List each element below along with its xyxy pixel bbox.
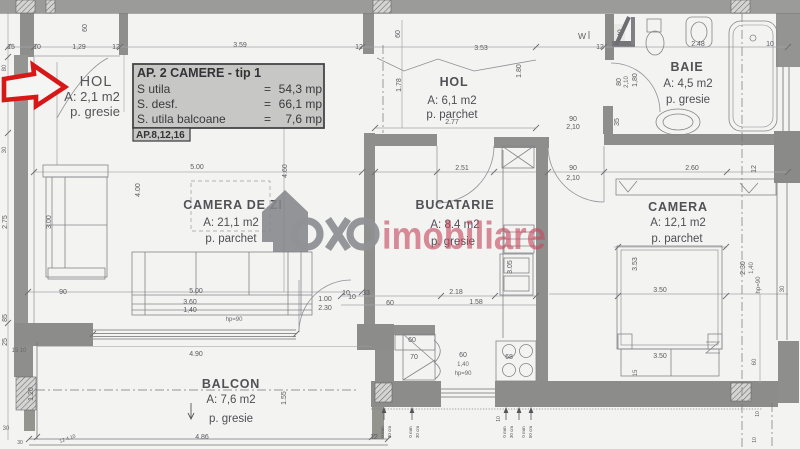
svg-text:3.00: 3.00 (46, 215, 53, 229)
svg-text:W: W (578, 31, 586, 41)
svg-text:2.30: 2.30 (318, 305, 332, 312)
svg-text:S. utila balcoane: S. utila balcoane (137, 112, 226, 126)
svg-text:0 mm: 0 mm (380, 426, 385, 438)
svg-text:HOL: HOL (440, 75, 469, 89)
svg-text:BUCATARIE: BUCATARIE (416, 198, 495, 212)
svg-text:10: 10 (20, 348, 27, 354)
svg-text:A: 2,1 m2: A: 2,1 m2 (64, 89, 120, 104)
svg-text:A: 6,1 m2: A: 6,1 m2 (427, 95, 476, 107)
svg-text:BAIE: BAIE (670, 60, 703, 74)
svg-text:30: 30 (2, 146, 8, 153)
svg-text:AP. 2 CAMERE - tip 1: AP. 2 CAMERE - tip 1 (137, 66, 261, 80)
svg-text:hp=90: hp=90 (226, 317, 244, 323)
svg-text:2,10: 2,10 (566, 124, 580, 131)
svg-text:p. gresie: p. gresie (209, 413, 253, 425)
svg-text:1.58: 1.58 (469, 299, 483, 306)
svg-text:30: 30 (780, 285, 786, 292)
svg-text:30 cm: 30 cm (415, 426, 420, 439)
svg-text:1,29: 1,29 (72, 44, 86, 51)
svg-text:4.86: 4.86 (195, 434, 209, 441)
svg-text:1,40: 1,40 (457, 362, 469, 368)
svg-text:85: 85 (2, 314, 9, 322)
svg-text:10: 10 (752, 437, 758, 443)
svg-text:p. gresie: p. gresie (666, 94, 710, 106)
svg-text:A: 21,1 m2: A: 21,1 m2 (203, 217, 259, 229)
svg-text:2,10: 2,10 (566, 175, 580, 182)
svg-text:HOL: HOL (80, 74, 113, 90)
svg-text:2.51: 2.51 (455, 165, 469, 172)
svg-text:0 mm: 0 mm (521, 426, 526, 438)
svg-text:60: 60 (82, 24, 89, 32)
svg-text:5.00: 5.00 (190, 164, 204, 171)
svg-text:3.53: 3.53 (474, 45, 488, 52)
svg-text:2,10: 2,10 (624, 76, 630, 88)
svg-text:p. gresie: p. gresie (70, 104, 120, 119)
svg-text:30 cm: 30 cm (509, 426, 514, 439)
svg-text:80: 80 (2, 64, 8, 71)
svg-text:10: 10 (766, 41, 774, 48)
svg-text:60: 60 (459, 352, 467, 359)
svg-text:7,6 mp: 7,6 mp (285, 112, 322, 126)
svg-text:70: 70 (410, 354, 418, 361)
svg-text:=: = (264, 112, 271, 126)
svg-text:3.59: 3.59 (233, 42, 247, 49)
svg-text:15: 15 (633, 369, 639, 376)
svg-text:90: 90 (569, 165, 577, 172)
svg-text:10: 10 (33, 44, 41, 51)
svg-text:80: 80 (616, 78, 623, 86)
svg-text:S. desf.: S. desf. (137, 97, 178, 111)
svg-text:50 cm: 50 cm (528, 426, 533, 439)
svg-text:imobiliare: imobiliare (382, 215, 546, 258)
svg-text:3.50: 3.50 (653, 287, 667, 294)
svg-text:1.78: 1.78 (396, 78, 403, 92)
svg-text:2.48: 2.48 (691, 41, 705, 48)
svg-text:AP.8,12,16: AP.8,12,16 (136, 130, 185, 141)
svg-text:15: 15 (12, 348, 19, 354)
svg-text:hp=90: hp=90 (756, 276, 762, 294)
svg-text:60: 60 (752, 358, 758, 365)
svg-text:12: 12 (596, 44, 604, 51)
svg-text:30: 30 (17, 440, 23, 446)
svg-text:60: 60 (386, 300, 394, 307)
svg-text:0 mm: 0 mm (502, 426, 507, 438)
svg-text:54,3 mp: 54,3 mp (279, 82, 323, 96)
svg-text:90: 90 (569, 116, 577, 123)
svg-text:2.18: 2.18 (449, 289, 463, 296)
svg-text:1.80: 1.80 (516, 64, 523, 78)
svg-text:1,40: 1,40 (749, 262, 755, 274)
svg-text:S utila: S utila (137, 82, 171, 96)
svg-text:5.00: 5.00 (189, 288, 203, 295)
svg-text:1.55: 1.55 (281, 391, 288, 405)
svg-text:68: 68 (505, 354, 513, 361)
svg-text:12: 12 (112, 44, 120, 51)
svg-text:60: 60 (395, 30, 402, 38)
svg-text:30 cm: 30 cm (387, 426, 392, 439)
svg-text:2.77: 2.77 (445, 119, 459, 126)
svg-text:1,40: 1,40 (183, 307, 197, 314)
svg-text:35: 35 (614, 118, 621, 126)
svg-text:15: 15 (7, 44, 15, 51)
svg-text:=: = (264, 97, 271, 111)
svg-text:60: 60 (408, 337, 416, 344)
svg-text:A: 12,1 m2: A: 12,1 m2 (650, 217, 706, 229)
svg-text:3.05: 3.05 (507, 260, 514, 274)
svg-text:3.53: 3.53 (632, 257, 639, 271)
svg-text:10: 10 (496, 416, 502, 422)
svg-text:4.60: 4.60 (282, 164, 289, 178)
svg-text:A: 7,6 m2: A: 7,6 m2 (206, 394, 255, 406)
svg-text:4.90: 4.90 (189, 351, 203, 358)
svg-text:30: 30 (3, 426, 10, 432)
svg-text:1,80: 1,80 (632, 73, 639, 87)
svg-text:25: 25 (2, 338, 9, 346)
svg-text:66,1 mp: 66,1 mp (279, 97, 323, 111)
svg-text:4.00: 4.00 (135, 183, 142, 197)
svg-text:1.20: 1.20 (28, 387, 35, 401)
svg-text:2.60: 2.60 (685, 165, 699, 172)
svg-text:90: 90 (59, 289, 67, 296)
svg-text:CAMERA: CAMERA (648, 200, 708, 214)
svg-text:A: 4,5 m2: A: 4,5 m2 (663, 78, 712, 90)
svg-text:BALCON: BALCON (202, 377, 260, 391)
svg-text:p. parchet: p. parchet (205, 233, 257, 245)
svg-text:12: 12 (751, 165, 758, 173)
svg-text:2.30: 2.30 (740, 261, 747, 275)
svg-text:0 mm: 0 mm (408, 426, 413, 438)
svg-text:=: = (264, 82, 271, 96)
svg-text:2.75: 2.75 (2, 215, 9, 229)
svg-text:p. parchet: p. parchet (651, 233, 703, 245)
svg-text:10: 10 (755, 411, 761, 417)
svg-text:1.00: 1.00 (318, 296, 332, 303)
svg-text:hp=90: hp=90 (455, 371, 473, 377)
svg-text:3.50: 3.50 (653, 353, 667, 360)
svg-text:3.60: 3.60 (183, 299, 197, 306)
